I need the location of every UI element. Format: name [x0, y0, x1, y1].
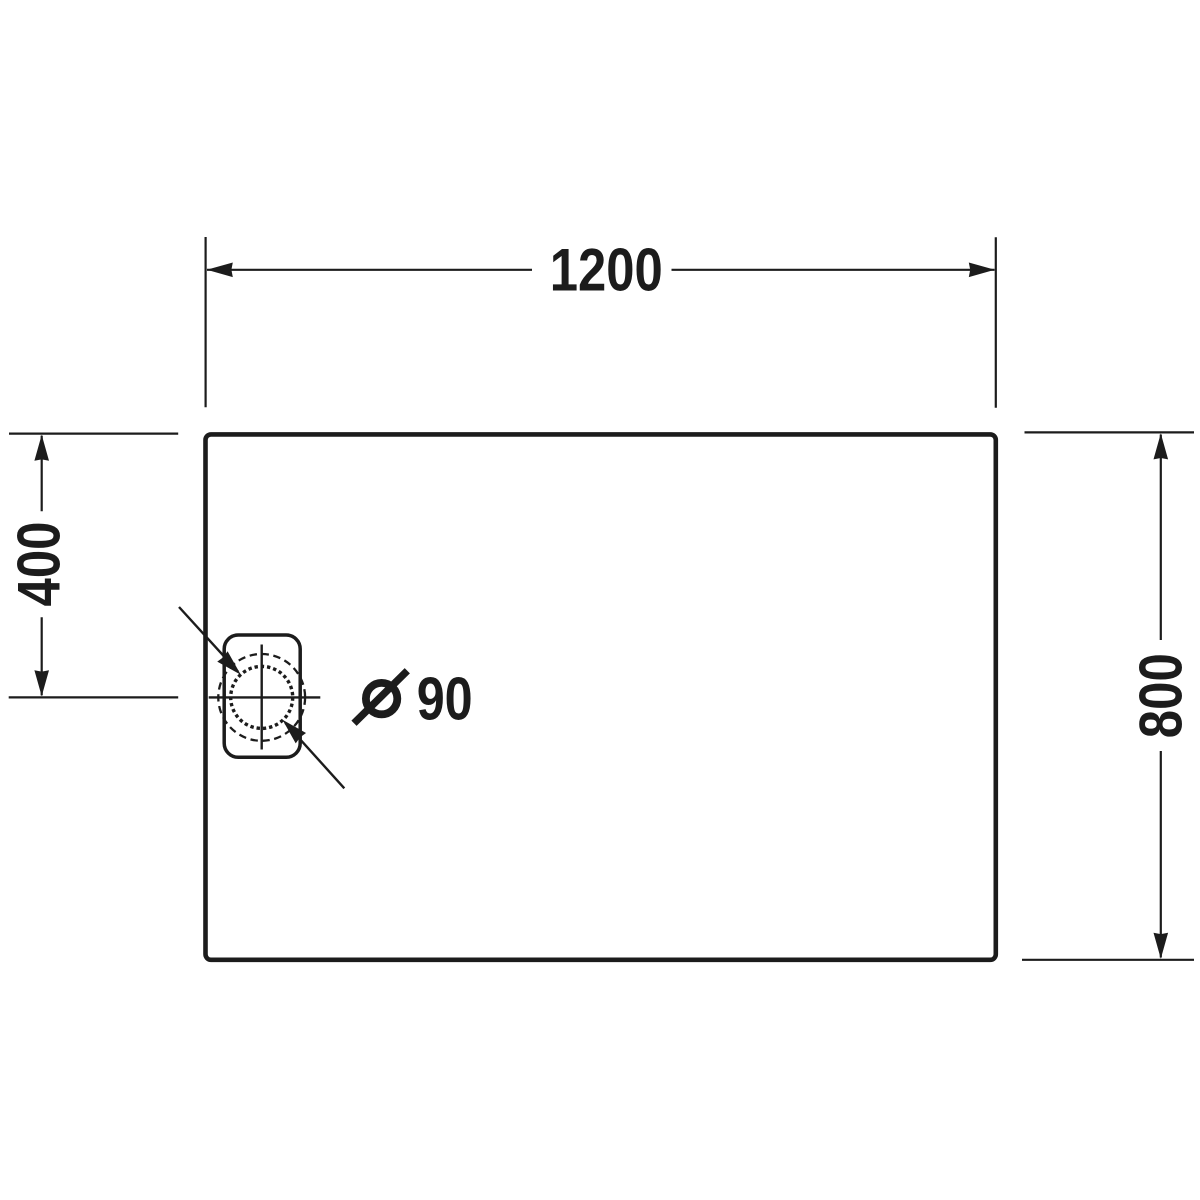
svg-text:800: 800 — [1127, 653, 1194, 738]
svg-text:90: 90 — [417, 665, 473, 732]
svg-text:400: 400 — [5, 522, 72, 607]
svg-text:1200: 1200 — [550, 236, 663, 303]
